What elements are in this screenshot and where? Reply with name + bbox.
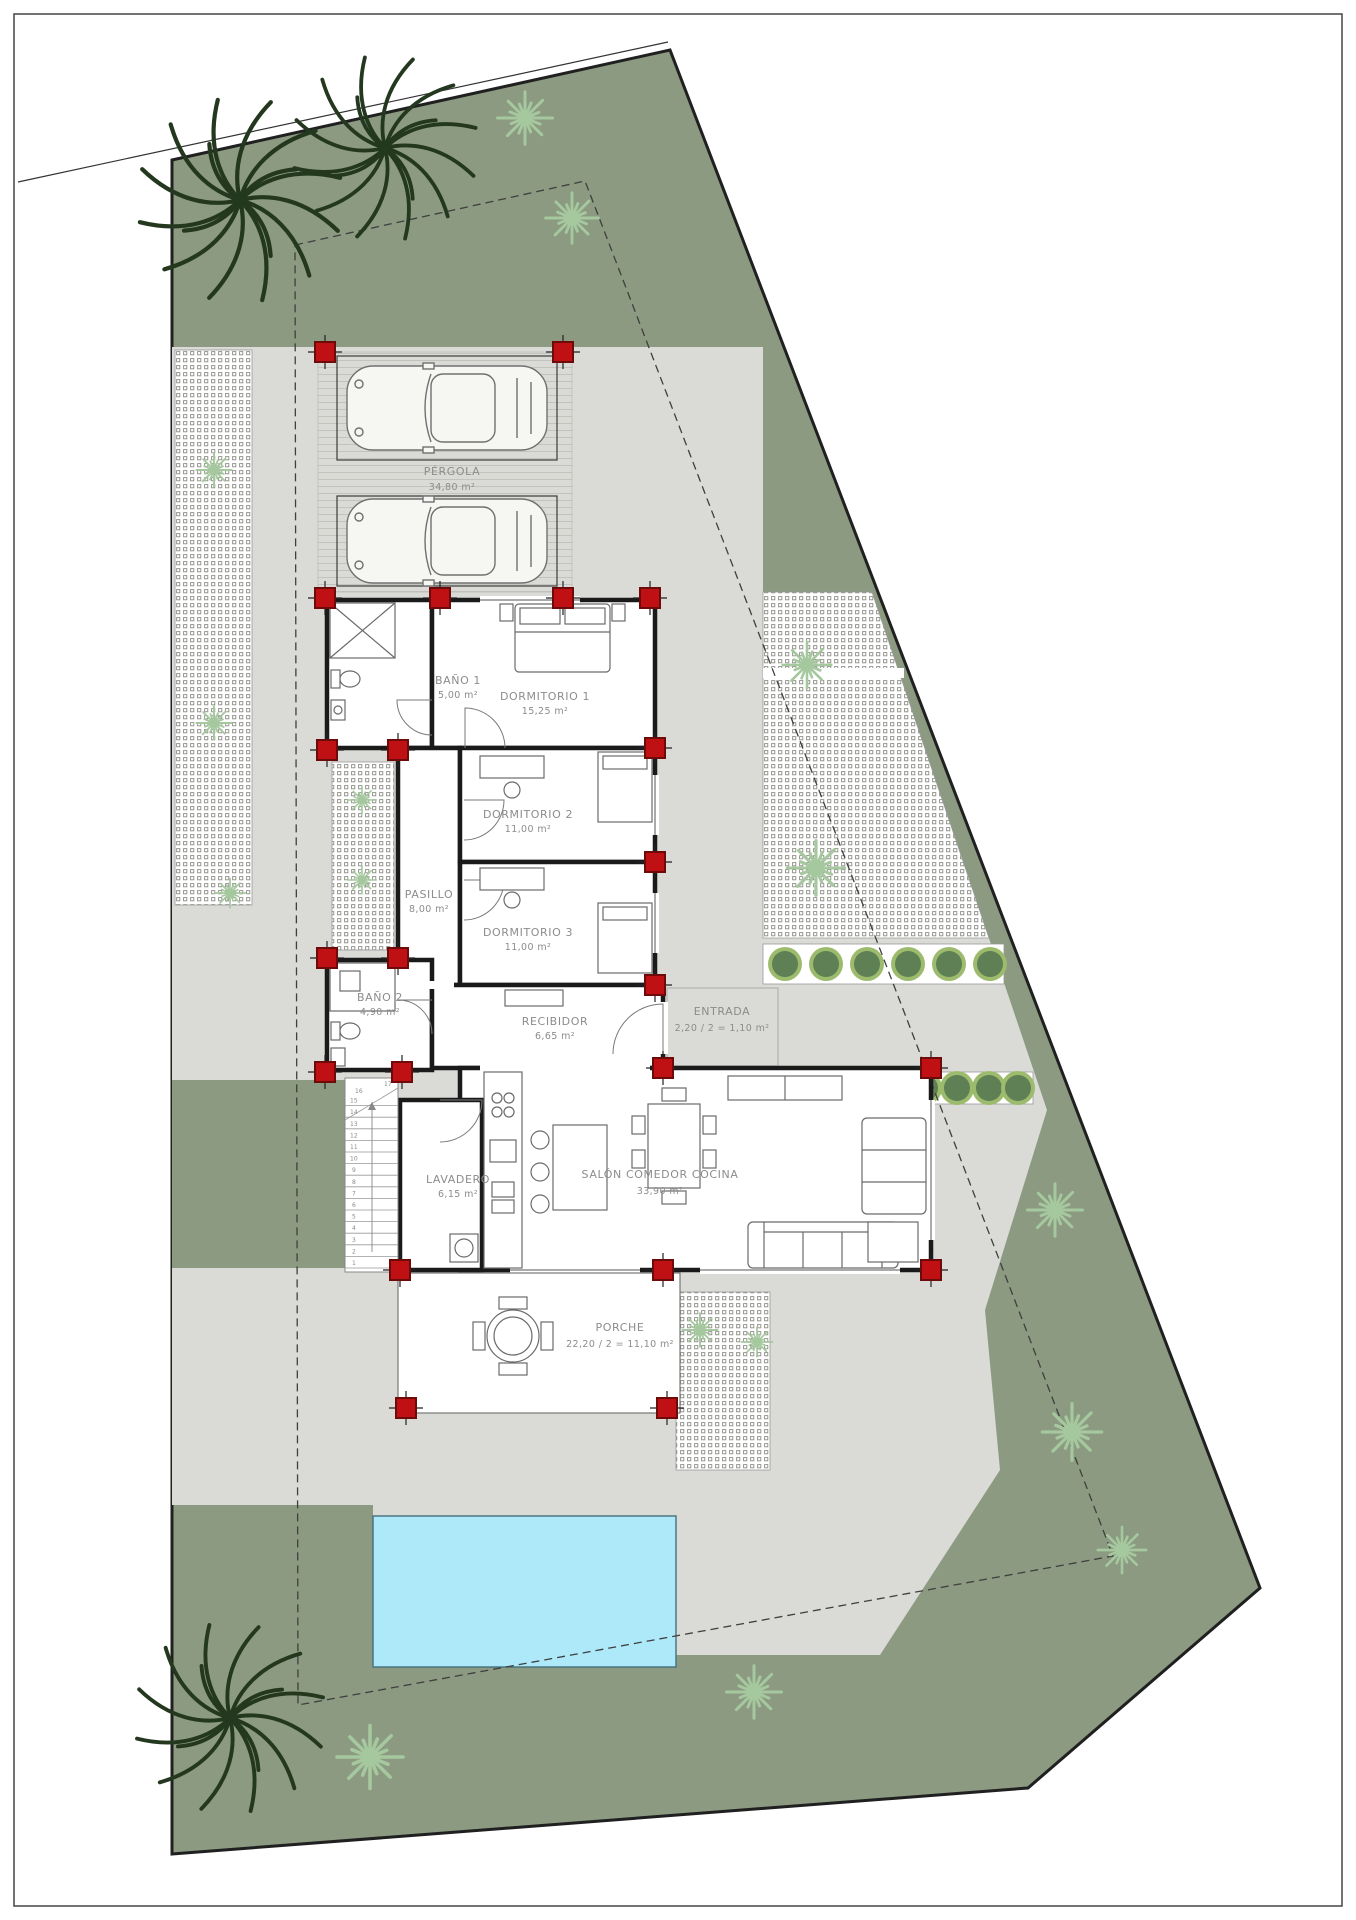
armchair (862, 1118, 926, 1214)
chair (703, 1116, 716, 1134)
car-icon (347, 496, 547, 586)
svg-text:11,00 m²: 11,00 m² (505, 942, 551, 953)
svg-text:2,20 / 2 = 1,10 m²: 2,20 / 2 = 1,10 m² (675, 1023, 770, 1034)
gravel-courtyard (332, 762, 394, 950)
svg-text:16: 16 (355, 1088, 363, 1095)
toilet-tank (331, 1022, 340, 1040)
svg-text:12: 12 (350, 1132, 358, 1139)
gravel-strip-left (175, 350, 252, 905)
svg-text:33,90 m²: 33,90 m² (637, 1186, 683, 1197)
svg-text:4,90 m²: 4,90 m² (360, 1007, 400, 1018)
pillow (565, 608, 605, 624)
porche-label: PORCHE (596, 1321, 645, 1334)
sink (331, 700, 345, 720)
gravel-divider (763, 668, 904, 678)
lavadero-label: LAVADERO (426, 1173, 490, 1186)
chair (499, 1363, 527, 1375)
svg-text:6,65 m²: 6,65 m² (535, 1031, 575, 1042)
pillow (603, 756, 647, 769)
svg-text:8,00 m²: 8,00 m² (409, 904, 449, 915)
entrada-label: ENTRADA (694, 1005, 751, 1018)
bano2-label: BAÑO 2 (357, 991, 403, 1004)
dormitorio3-label: DORMITORIO 3 (483, 926, 573, 939)
nightstand (500, 604, 513, 621)
svg-text:17: 17 (384, 1081, 392, 1088)
chair (703, 1150, 716, 1168)
gravel-area-porch-side (676, 1292, 770, 1470)
hedge-bush (850, 947, 884, 981)
car-icon (347, 363, 547, 453)
svg-text:13: 13 (350, 1121, 358, 1128)
console-table (505, 990, 563, 1006)
svg-text:2: 2 (352, 1248, 356, 1255)
site-plan-drawing: PÉRGOLA 34,80 m² (0, 0, 1356, 1920)
hedge-bush (973, 947, 1007, 981)
desk (480, 756, 544, 778)
porch-table (487, 1310, 539, 1362)
chair (541, 1322, 553, 1350)
svg-text:5,00 m²: 5,00 m² (438, 690, 478, 701)
garden-block-left (172, 1080, 345, 1268)
svg-text:22,20 / 2 = 11,10 m²: 22,20 / 2 = 11,10 m² (566, 1339, 674, 1350)
pillow (603, 907, 647, 920)
side-table (868, 1222, 918, 1262)
chair (473, 1322, 485, 1350)
pergola-label: PÉRGOLA (424, 465, 481, 478)
dormitorio2-label: DORMITORIO 2 (483, 808, 573, 821)
bano1-label: BAÑO 1 (435, 674, 481, 687)
svg-text:15: 15 (350, 1098, 358, 1105)
svg-text:5: 5 (352, 1214, 356, 1221)
pergola-area: 34,80 m² (429, 482, 475, 493)
svg-text:14: 14 (350, 1109, 358, 1116)
toilet-icon (340, 1023, 360, 1039)
hedge-bush (768, 947, 802, 981)
svg-text:11: 11 (350, 1144, 358, 1151)
washing-machine (450, 1234, 478, 1262)
svg-text:15,25 m²: 15,25 m² (522, 706, 568, 717)
hedge-bush (1001, 1071, 1035, 1105)
salon-label: SALÓN COMEDOR COCINA (582, 1168, 739, 1181)
svg-text:4: 4 (352, 1225, 356, 1232)
svg-text:6: 6 (352, 1202, 356, 1209)
hedge-bush (932, 947, 966, 981)
pillow (520, 608, 560, 624)
staircase: 1 2 3 4 5 6 7 8 9 10 11 12 13 14 15 16 1… (345, 1078, 398, 1272)
toilet-tank (331, 670, 340, 688)
desk (480, 868, 544, 890)
svg-text:1: 1 (352, 1260, 356, 1267)
svg-text:9: 9 (352, 1167, 356, 1174)
chair (499, 1297, 527, 1309)
recibidor-label: RECIBIDOR (522, 1015, 588, 1028)
chair (632, 1150, 645, 1168)
hedge-bush (940, 1071, 974, 1105)
floor-plan-page: PÉRGOLA 34,80 m² (0, 0, 1356, 1920)
svg-text:7: 7 (352, 1190, 356, 1197)
toilet-icon (340, 671, 360, 687)
pasillo-label: PASILLO (405, 888, 453, 901)
svg-text:3: 3 (352, 1237, 356, 1244)
dormitorio1-label: DORMITORIO 1 (500, 690, 590, 703)
chair (632, 1116, 645, 1134)
svg-text:6,15 m²: 6,15 m² (438, 1189, 478, 1200)
svg-text:11,00 m²: 11,00 m² (505, 824, 551, 835)
kitchen-counter (484, 1072, 522, 1268)
hedge-bush (891, 947, 925, 981)
svg-text:8: 8 (352, 1179, 356, 1186)
hedge-bush (809, 947, 843, 981)
nightstand (612, 604, 625, 621)
chair (662, 1088, 686, 1101)
hedge-bush (972, 1071, 1006, 1105)
swimming-pool (373, 1516, 676, 1667)
svg-text:10: 10 (350, 1156, 358, 1163)
